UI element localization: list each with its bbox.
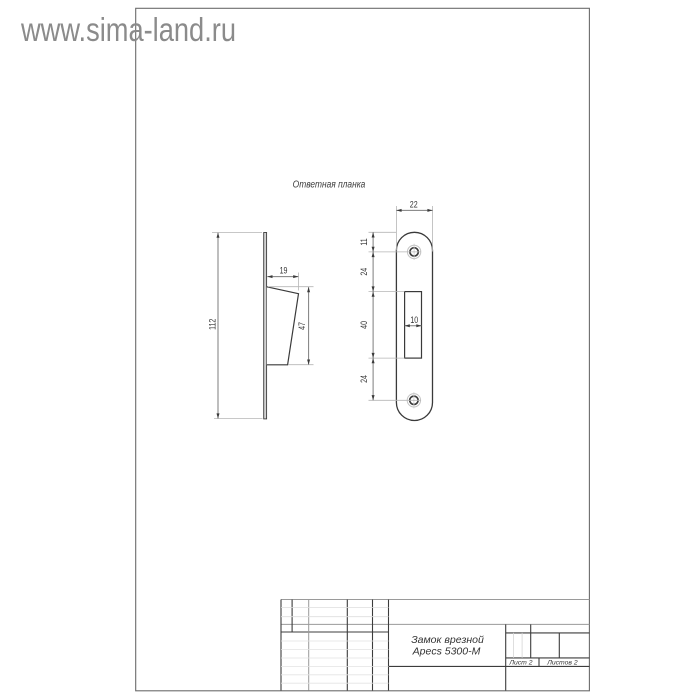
svg-text:Лист 2: Лист 2 [508,660,532,667]
svg-text:Замок врезной: Замок врезной [411,634,484,646]
svg-text:40: 40 [359,321,369,329]
svg-text:10: 10 [410,315,418,325]
svg-text:112: 112 [208,318,218,330]
svg-text:Листов 2: Листов 2 [546,660,578,667]
svg-text:24: 24 [359,375,369,383]
svg-text:47: 47 [297,322,307,330]
svg-text:19: 19 [280,266,288,276]
svg-text:24: 24 [359,267,369,275]
svg-text:www.sima-land.ru: www.sima-land.ru [20,13,236,49]
svg-text:11: 11 [359,238,369,246]
svg-text:22: 22 [410,200,418,210]
svg-text:Apecs 5300-M: Apecs 5300-M [412,646,481,658]
svg-text:Ответная планка: Ответная планка [293,179,366,191]
